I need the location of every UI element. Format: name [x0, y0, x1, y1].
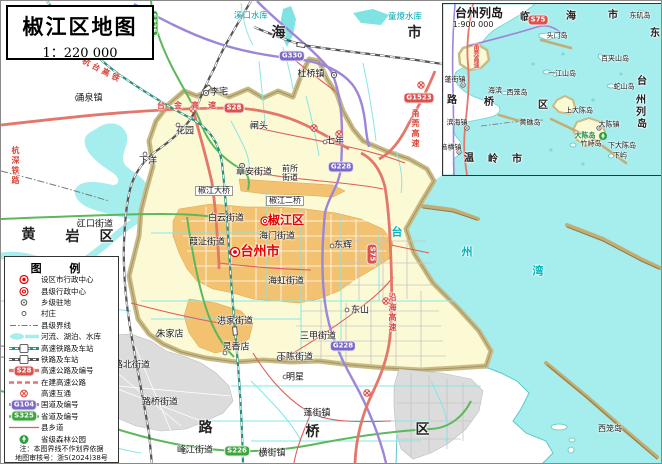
place-label: 下大陈岛 — [608, 143, 636, 150]
legend-item: 乡级驻地 — [5, 297, 118, 308]
place-label: 一江山岛 — [548, 71, 576, 78]
legend-item-label: 设区市行政中心 — [41, 274, 94, 285]
inset-title: 台州列岛 — [455, 7, 503, 19]
place-label: 州 — [636, 96, 646, 106]
legend-road-badge: S325 — [11, 411, 37, 422]
inset-label-layer: 台州列岛 1:900 000 临海市东台州列岛温岭市路桥区东矶岛头门岛百夹山岛一… — [443, 4, 662, 175]
map-title: 椒江区地图 — [8, 11, 152, 41]
legend-item-label: 在建高速公路 — [41, 377, 86, 388]
legend-item: 村庄 — [5, 308, 118, 319]
legend-item: 河流、湖泊、水库 — [5, 331, 118, 342]
legend: 图 例 设区市行政中心县级行政中心乡级驻地村庄县级界线河流、湖泊、水库高速铁路及… — [4, 256, 119, 463]
legend-title: 图 例 — [5, 257, 118, 274]
legend-item: 铁路及车站 — [5, 354, 118, 365]
legend-item-label: 县乡道 — [41, 422, 64, 433]
place-label: 大陈岛 — [575, 133, 596, 140]
legend-item: 设区市行政中心 — [5, 274, 118, 285]
legend-symbol-village — [7, 308, 41, 319]
legend-item-label: 省级森林公园 — [41, 434, 86, 445]
place-label: 市 — [608, 11, 618, 21]
legend-symbol-county — [7, 286, 41, 297]
legend-symbol-provincial: S325 — [7, 411, 41, 422]
map-scale: 1：220 000 — [8, 42, 152, 61]
place-label: 大陈镇 — [599, 122, 620, 129]
title-box: 椒江区地图 1：220 000 — [6, 5, 154, 60]
inset-map: 台州列岛 1:900 000 临海市东台州列岛温岭市路桥区东矶岛头门岛百夹山岛一… — [442, 3, 662, 176]
place-label: 竹峙岛 — [581, 141, 602, 148]
place-label: 路 — [447, 96, 457, 106]
place-label: 海 — [566, 12, 576, 22]
legend-symbol-rail — [7, 354, 41, 365]
place-label: 市 — [512, 155, 522, 165]
legend-item: 在建高速公路 — [5, 377, 118, 388]
legend-note-2: 地图审核号：浙S(2024)38号 — [5, 454, 118, 463]
place-label: 下屿 — [613, 153, 627, 160]
legend-symbol-interchange — [7, 388, 41, 399]
place-label: 岛 — [637, 120, 647, 130]
place-label: 列 — [636, 108, 646, 118]
legend-item-label: 省道及编号 — [41, 411, 79, 422]
place-label: 百夹山岛 — [601, 56, 629, 63]
legend-item: 高速铁路及车站 — [5, 342, 118, 353]
place-label: 温 — [464, 154, 474, 164]
place-label: 黄礁岛 — [520, 120, 541, 127]
legend-item: 县乡道 — [5, 422, 118, 433]
legend-road-badge: G104 — [11, 399, 37, 410]
legend-symbol-expwy-uc — [7, 377, 41, 388]
legend-item-label: 铁路及车站 — [41, 354, 79, 365]
legend-item-label: 村庄 — [41, 308, 56, 319]
legend-item: S325省道及编号 — [5, 411, 118, 422]
legend-item: 高速互通 — [5, 388, 118, 399]
legend-road-badge: S28 — [14, 365, 35, 376]
legend-item-label: 县级行政中心 — [41, 286, 86, 297]
place-label: 蓬街镇 — [445, 77, 466, 84]
place-label: 台 — [637, 77, 647, 87]
legend-rows: 设区市行政中心县级行政中心乡级驻地村庄县级界线河流、湖泊、水库高速铁路及车站铁路… — [5, 274, 118, 445]
place-label: 蛇山岛 — [614, 84, 635, 91]
legend-item-label: 乡级驻地 — [41, 297, 71, 308]
place-label: 甬莞高速 — [472, 44, 478, 68]
place-label: 海滨 — [488, 88, 502, 95]
legend-item-label: 国道及编号 — [41, 399, 79, 410]
place-label: 东矶岛 — [630, 13, 651, 20]
inset-scale: 1:900 000 — [453, 21, 494, 29]
legend-symbol-national: G104 — [7, 399, 41, 410]
legend-symbol-boundary — [7, 320, 41, 331]
legend-item: 县级行政中心 — [5, 285, 118, 296]
place-label: 岭 — [488, 155, 498, 165]
legend-item-label: 高速铁路及车站 — [41, 343, 94, 354]
legend-note-1: 注：本图界线不作划界依据 — [5, 445, 118, 454]
legend-item: S28高速公路及编号 — [5, 365, 118, 376]
legend-symbol-township — [7, 297, 41, 308]
legend-item: G104国道及编号 — [5, 399, 118, 410]
legend-symbol-expwy: S28 — [7, 365, 41, 376]
legend-symbol-city — [7, 274, 41, 285]
place-label: 区 — [538, 101, 548, 111]
place-label: 桥 — [484, 98, 494, 108]
map-root: 临海市黄岩区路桥区台州市椒江区涌泉镇杜桥镇李宅花园闸头七年章安街道前所街道下洋江… — [0, 0, 662, 464]
legend-item-label: 高速互通 — [41, 388, 71, 399]
legend-item: 县级界线 — [5, 320, 118, 331]
place-label: 头门岛 — [547, 33, 568, 40]
legend-item-label: 高速公路及编号 — [41, 365, 94, 376]
place-label: 东 — [650, 29, 660, 39]
place-label: 西笼岛 — [507, 90, 528, 97]
legend-symbol-water — [7, 331, 41, 342]
legend-symbol-hsr — [7, 343, 41, 354]
legend-symbol-forest — [7, 434, 41, 445]
legend-item: 省级森林公园 — [5, 433, 118, 444]
legend-item-label: 县级界线 — [41, 320, 71, 331]
legend-item-label: 河流、湖泊、水库 — [41, 331, 101, 342]
place-label: 滨海镇 — [447, 120, 468, 127]
place-label: 箬横镇 — [442, 145, 462, 152]
road-badge: S75 — [528, 15, 549, 26]
legend-symbol-county-road — [7, 422, 41, 433]
place-label: 上大陈岛 — [565, 108, 593, 115]
